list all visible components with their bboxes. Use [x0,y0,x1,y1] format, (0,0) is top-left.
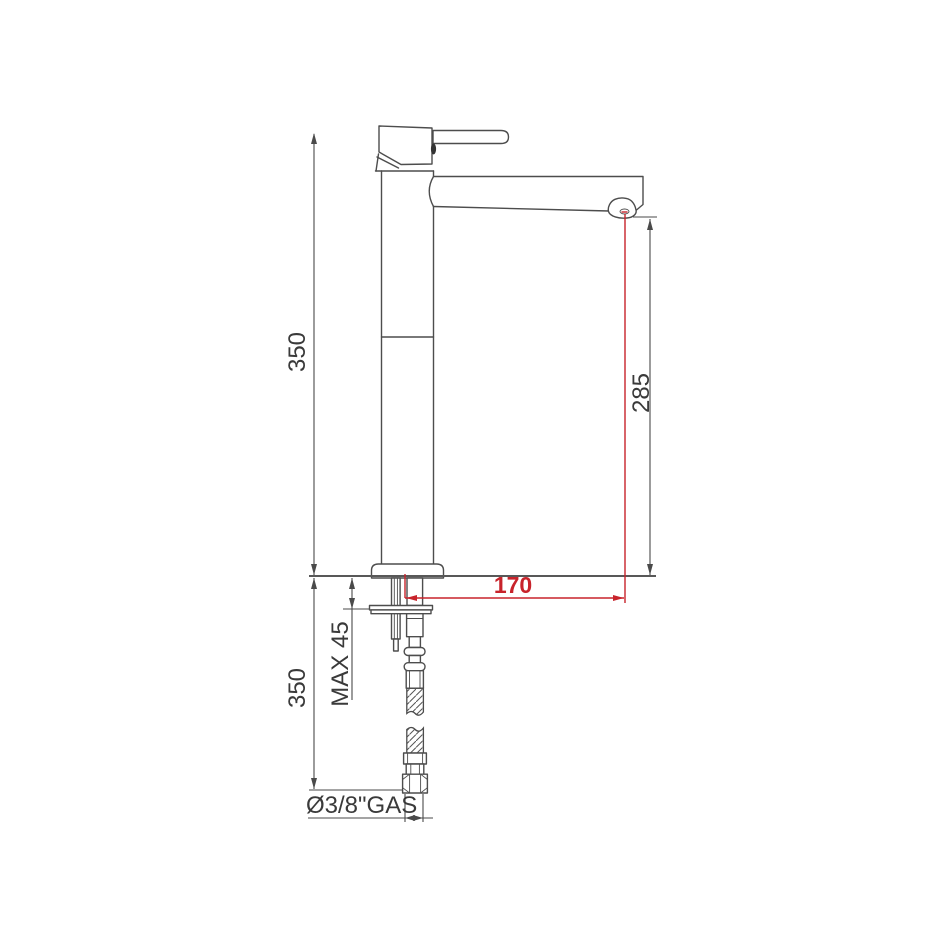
under-counter-assembly [370,578,433,793]
dimension-supply-connection: Ø3/8"GAS [306,792,433,822]
aerator [608,198,636,218]
arrow-down [349,598,355,609]
dimension-max-deck-thickness: MAX 45 [327,578,370,707]
flex-hose-lower [407,728,424,754]
fixing-stud-tip [394,639,399,651]
supply-shank [407,578,423,606]
max-deck-thickness-label: MAX 45 [327,621,354,706]
upper-height-label: 350 [284,332,311,372]
arrow-up [647,219,653,230]
hose-crimp [406,764,424,774]
hose-ring-2 [404,663,425,671]
lever-pivot-dot [431,144,436,155]
flex-hose-upper [407,688,424,715]
arrow-up [349,578,355,589]
arrow-up [311,578,317,589]
arrow-down [311,564,317,575]
spout-height-label: 285 [628,373,655,413]
spout-reach-label: 170 [494,572,532,598]
hose-ring-1 [404,648,425,656]
spout-end-arc [429,177,433,207]
spout-bottom-edge [434,207,610,212]
hose-coupling-block [407,614,423,637]
lever-handle [433,131,509,144]
dimension-upper-height: 350 [284,133,317,575]
arrow-up [311,133,317,144]
hose-collar [406,671,423,689]
dimension-spout-reach: 170 [405,214,625,603]
drawing-canvas: 350 350 MAX 45 285 Ø3/8"GAS 170 [0,0,950,950]
dimension-spout-height: 285 [628,217,657,575]
arrow-down [647,564,653,575]
faucet-body [372,126,644,578]
arrow-down [311,778,317,789]
supply-connection-label: Ø3/8"GAS [306,792,417,819]
hose-coupling-step [409,637,420,648]
arrow-right [613,595,624,601]
lower-height-label: 350 [284,668,311,708]
hose-neck [409,656,420,663]
faucet-technical-drawing: 350 350 MAX 45 285 Ø3/8"GAS 170 [0,0,950,950]
handle-cap [379,126,432,165]
